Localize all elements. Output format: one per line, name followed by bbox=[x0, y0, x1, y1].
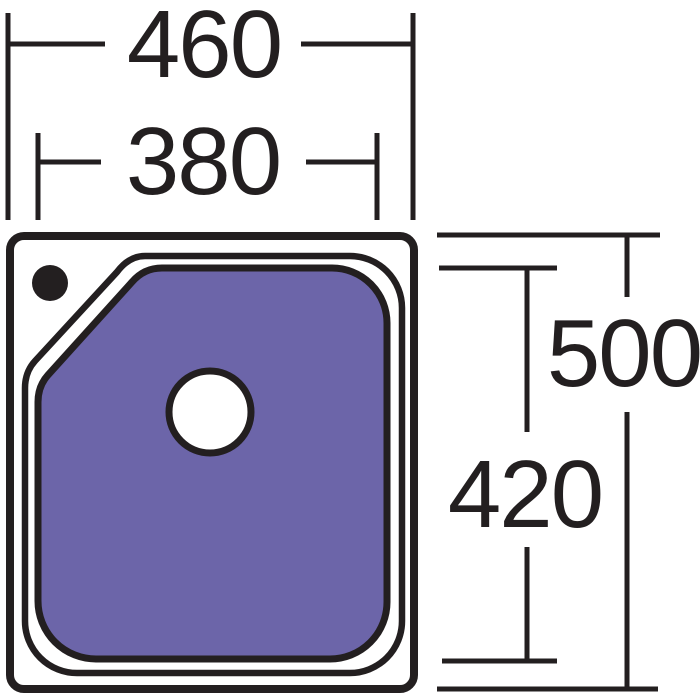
label-overall-depth: 500 bbox=[547, 300, 700, 407]
sink-bowl bbox=[38, 268, 387, 659]
sink-top-view bbox=[10, 236, 414, 689]
drain-hole bbox=[169, 371, 251, 453]
sink-dimension-diagram: 460 380 500 420 bbox=[0, 0, 700, 700]
label-overall-width: 460 bbox=[127, 0, 281, 98]
diagram-canvas: 460 380 500 420 bbox=[0, 0, 700, 700]
label-bowl-width: 380 bbox=[126, 108, 280, 215]
tap-hole bbox=[32, 265, 68, 301]
label-bowl-depth: 420 bbox=[448, 441, 602, 548]
